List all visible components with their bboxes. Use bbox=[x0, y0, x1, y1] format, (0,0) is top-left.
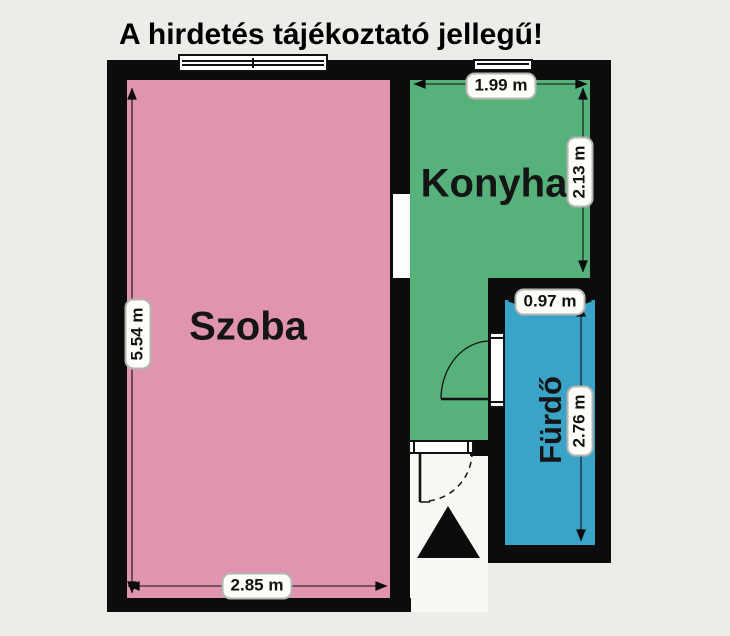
window-konyha-icon bbox=[473, 59, 533, 71]
floor-plan: A hirdetés tájékoztató jellegű! bbox=[0, 0, 730, 636]
door-jamb-entrance bbox=[408, 440, 474, 454]
wall-bottom bbox=[107, 598, 411, 612]
dim-label-konyha-width: 1.99 m bbox=[466, 73, 537, 100]
window-center-mullion bbox=[252, 58, 254, 68]
door-jamb-bathroom bbox=[489, 332, 505, 408]
window-pane-line bbox=[477, 63, 529, 65]
passage-opening bbox=[393, 194, 410, 278]
jamb-end-block bbox=[467, 442, 469, 452]
window-szoba-icon bbox=[178, 54, 328, 72]
dim-label-furdo-width: 0.97 m bbox=[515, 289, 586, 316]
wall-divider bbox=[390, 60, 410, 612]
dim-label-konyha-height: 2.13 m bbox=[567, 137, 594, 208]
room-konyha-annex bbox=[410, 278, 488, 440]
room-label-szoba: Szoba bbox=[189, 305, 307, 350]
jamb-end-block bbox=[491, 401, 503, 403]
dim-label-szoba-height: 5.54 m bbox=[125, 299, 152, 370]
jamb-end-block bbox=[491, 337, 503, 339]
entry-area bbox=[410, 452, 488, 612]
dim-label-szoba-width: 2.85 m bbox=[222, 573, 293, 600]
room-label-konyha: Konyha bbox=[421, 162, 568, 207]
dim-label-furdo-height: 2.76 m bbox=[567, 386, 594, 457]
room-label-furdo: Fürdő bbox=[533, 376, 569, 464]
page-title: A hirdetés tájékoztató jellegű! bbox=[119, 18, 543, 52]
jamb-end-block bbox=[413, 442, 415, 452]
